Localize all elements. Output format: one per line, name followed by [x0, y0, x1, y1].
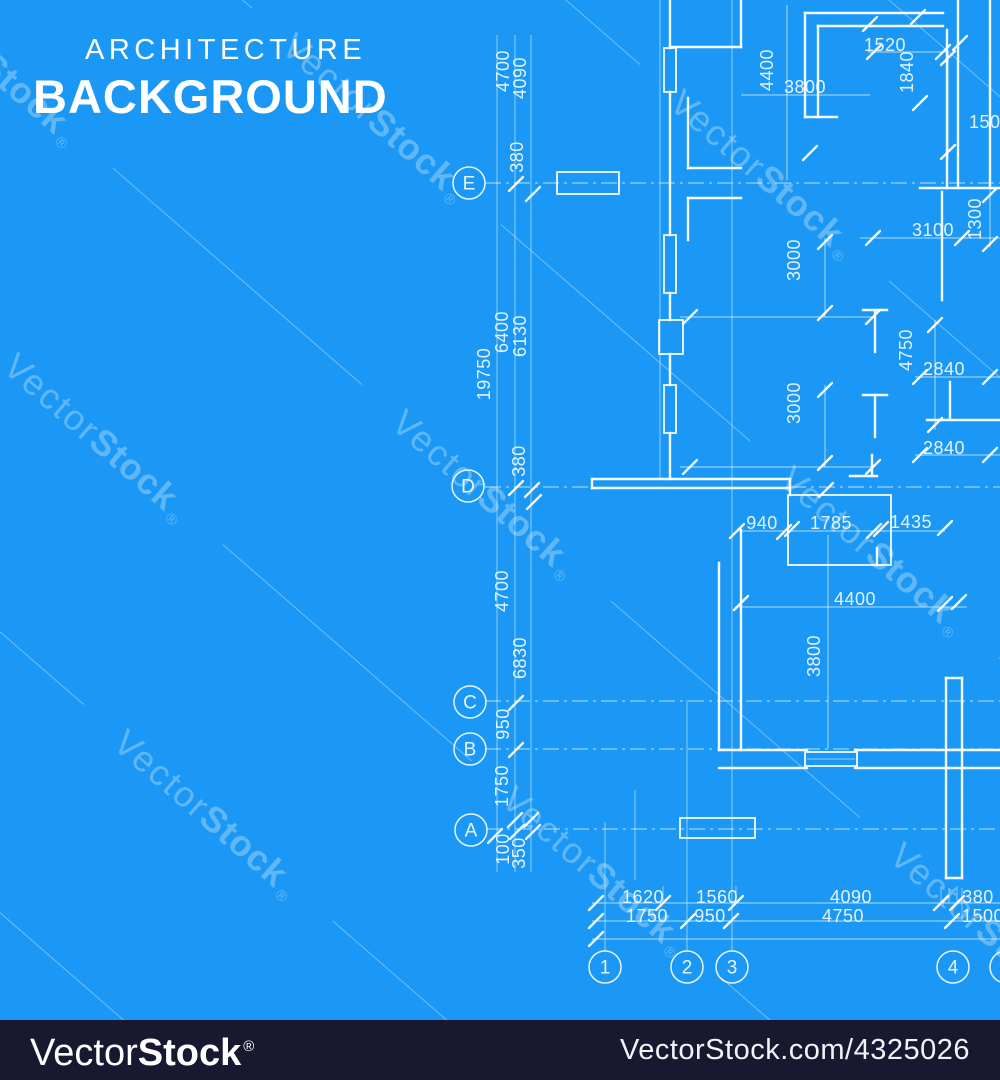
image-attribution-url: VectorStock.com/4325026 [620, 1034, 970, 1067]
dimension-text-vertical: 6130 [510, 315, 530, 357]
dimension-text: 1435 [890, 512, 932, 532]
blueprint-symbol-rect [664, 235, 676, 293]
dimension-text-vertical: 3000 [784, 239, 804, 281]
dimension-tick [953, 36, 967, 50]
dimension-text: 1500 [969, 112, 1000, 132]
title-block: ARCHITECTURE BACKGROUND [33, 34, 388, 124]
stock-image-canvas: ARCHITECTURE BACKGROUND 1520380031001500… [0, 0, 1000, 1080]
grid-marker-label: C [463, 693, 477, 714]
dimension-text: 4400 [834, 589, 876, 609]
dimension-text-vertical: 380 [507, 141, 527, 173]
vectorstock-logo: VectorStock® [30, 1017, 254, 1080]
dimension-tick [526, 187, 540, 201]
dimension-text-vertical: 1840 [897, 51, 917, 93]
dimension-tick [938, 521, 952, 535]
grid-marker-label: A [465, 821, 478, 842]
title-line-architecture: ARCHITECTURE [85, 34, 388, 67]
blueprint-svg: 1520380031001500284028409401785143544001… [0, 0, 1000, 1020]
blueprint-symbol-rect [664, 48, 676, 92]
dimension-text-vertical: 3800 [804, 635, 824, 677]
dimension-text-vertical: 4090 [510, 57, 530, 99]
dimension-tick [863, 17, 877, 31]
dimension-text: 3100 [912, 220, 954, 240]
dimension-text-vertical: 6830 [510, 637, 530, 679]
logo-text-stock: Stock [138, 1032, 241, 1074]
dimension-text: 950 [694, 906, 726, 926]
blueprint-symbol-rect [659, 320, 683, 354]
dimension-tick [913, 96, 927, 110]
dimension-text-vertical: 350 [509, 837, 529, 869]
grid-marker-label: D [461, 477, 475, 498]
grid-marker-circle [990, 951, 1000, 983]
dimension-text-vertical: 6400 [492, 311, 512, 353]
dimension-text-vertical: 3000 [784, 382, 804, 424]
dimension-tick [509, 743, 523, 757]
dimension-text: 4750 [822, 906, 864, 926]
dimension-text: 1560 [696, 887, 738, 907]
grid-marker-label: B [464, 740, 477, 761]
dimension-tick [509, 481, 523, 495]
dimension-text-vertical: 1300 [965, 198, 985, 240]
dimension-text-vertical: 950 [493, 708, 513, 740]
blueprint-symbol-rect [664, 385, 676, 433]
dimension-tick [509, 177, 523, 191]
dimension-text: 1750 [626, 906, 668, 926]
dimension-tick [938, 597, 952, 611]
grid-marker-label: 4 [948, 958, 959, 979]
dimension-text: 2840 [923, 438, 965, 458]
dimension-text: 2840 [923, 359, 965, 379]
dimension-text-vertical: 380 [509, 445, 529, 477]
dimension-text-vertical: 4750 [896, 329, 916, 371]
blueprint-symbol-rect [680, 818, 755, 838]
registered-mark-icon: ® [243, 1038, 254, 1055]
dimension-text: 380 [962, 887, 994, 907]
title-line-background: BACKGROUND [33, 69, 388, 124]
grid-marker-label: 3 [727, 958, 738, 979]
dimension-tick [527, 495, 541, 509]
grid-marker-label: 1 [600, 958, 611, 979]
footer-bar: VectorStock® VectorStock.com/4325026 [0, 1020, 1000, 1080]
dimension-tick [803, 146, 817, 160]
dimension-text: 4090 [830, 887, 872, 907]
dimension-text-vertical: 4700 [492, 570, 512, 612]
dimension-text: 940 [746, 513, 778, 533]
grid-marker-label: 2 [682, 958, 693, 979]
dimension-text: 1785 [810, 513, 852, 533]
logo-text-vector: Vector [30, 1032, 138, 1074]
dimension-text-vertical: 19750 [474, 348, 494, 401]
dimension-text: 3800 [784, 77, 826, 97]
dimension-tick [525, 483, 539, 497]
dimension-text-vertical: 1750 [492, 765, 512, 807]
dimension-text-vertical: 4400 [757, 49, 777, 91]
dimension-tick [526, 825, 540, 839]
dimension-text: 1500 [962, 906, 1000, 926]
grid-marker-label: E [463, 174, 476, 195]
dimension-text: 1620 [622, 887, 664, 907]
dimension-tick [509, 696, 523, 710]
